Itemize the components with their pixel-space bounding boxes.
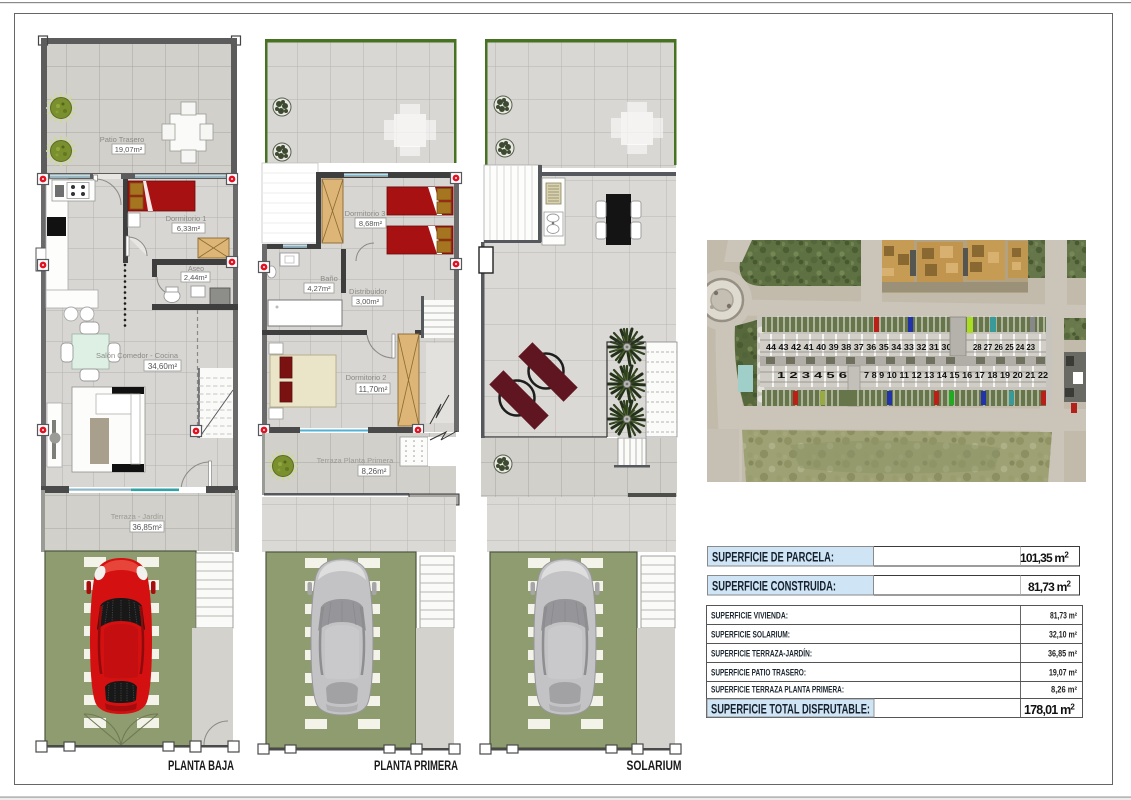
svg-text:Distribuidor: Distribuidor bbox=[349, 287, 387, 296]
svg-text:Terraza - Jardín: Terraza - Jardín bbox=[111, 512, 164, 521]
svg-text:SOLARIUM: SOLARIUM bbox=[627, 758, 682, 773]
svg-text:11,70m²: 11,70m² bbox=[359, 385, 388, 394]
svg-text:SUPERFICIE TERRAZA-JARDÍN:: SUPERFICIE TERRAZA-JARDÍN: bbox=[711, 649, 812, 660]
svg-text:SUPERFICIE DE PARCELA:: SUPERFICIE DE PARCELA: bbox=[712, 550, 834, 565]
svg-text:1 2 3 4 5 6: 1 2 3 4 5 6 bbox=[777, 370, 847, 380]
svg-text:34,60m²: 34,60m² bbox=[148, 362, 178, 371]
svg-text:3,00m²: 3,00m² bbox=[356, 297, 380, 306]
svg-text:32,10 m²: 32,10 m² bbox=[1049, 630, 1077, 640]
svg-text:Terraza Planta Primera: Terraza Planta Primera bbox=[317, 456, 395, 465]
svg-text:4,27m²: 4,27m² bbox=[307, 284, 331, 293]
svg-text:8,26 m²: 8,26 m² bbox=[1051, 685, 1077, 695]
svg-text:6,33m²: 6,33m² bbox=[177, 224, 201, 233]
svg-text:SUPERFICIE TERRAZA PLANTA PRIM: SUPERFICIE TERRAZA PLANTA PRIMERA: bbox=[711, 685, 844, 696]
svg-text:7 8 9 10 11 12 13 14 15 16 17: 7 8 9 10 11 12 13 14 15 16 17 18 19 20 2… bbox=[864, 370, 1048, 380]
svg-text:19,07 m²: 19,07 m² bbox=[1049, 668, 1077, 678]
svg-text:SUPERFICIE TOTAL DISFRUTABLE:: SUPERFICIE TOTAL DISFRUTABLE: bbox=[711, 701, 870, 717]
svg-text:Patio Trasero: Patio Trasero bbox=[100, 135, 145, 144]
svg-text:36,85 m²: 36,85 m² bbox=[1048, 649, 1077, 659]
svg-text:28 27 26 25 24 23: 28 27 26 25 24 23 bbox=[973, 342, 1035, 352]
svg-text:44 43 42 41 40 39 38 37 36 35: 44 43 42 41 40 39 38 37 36 35 34 33 32 3… bbox=[766, 342, 964, 352]
svg-text:19,07m²: 19,07m² bbox=[115, 145, 143, 154]
svg-text:101,35 m2: 101,35 m2 bbox=[1020, 551, 1069, 566]
svg-text:SUPERFICIE VIVIENDA:: SUPERFICIE VIVIENDA: bbox=[711, 611, 788, 622]
svg-text:Salón Comedor - Cocina: Salón Comedor - Cocina bbox=[96, 351, 179, 360]
svg-text:178,01 m2: 178,01 m2 bbox=[1024, 703, 1075, 718]
svg-text:Baño: Baño bbox=[320, 274, 338, 283]
svg-text:SUPERFICIE CONSTRUIDA:: SUPERFICIE CONSTRUIDA: bbox=[712, 579, 836, 594]
svg-text:SUPERFICIE SOLARIUM:: SUPERFICIE SOLARIUM: bbox=[711, 630, 790, 641]
svg-text:Dormitorio 1: Dormitorio 1 bbox=[166, 214, 207, 223]
svg-text:Dormitorio 3: Dormitorio 3 bbox=[345, 209, 386, 218]
svg-text:2,44m²: 2,44m² bbox=[184, 273, 208, 282]
svg-text:PLANTA BAJA: PLANTA BAJA bbox=[168, 758, 234, 773]
svg-text:Dormitorio 2: Dormitorio 2 bbox=[346, 373, 387, 382]
svg-text:PLANTA PRIMERA: PLANTA PRIMERA bbox=[374, 758, 458, 773]
svg-text:81,73 m2: 81,73 m2 bbox=[1028, 580, 1071, 595]
svg-text:8,68m²: 8,68m² bbox=[359, 219, 383, 228]
svg-text:36,85m²: 36,85m² bbox=[132, 523, 162, 532]
svg-text:81,73 m²: 81,73 m² bbox=[1050, 611, 1077, 621]
svg-text:SUPERFICIE PATIO TRASERO:: SUPERFICIE PATIO TRASERO: bbox=[711, 668, 806, 679]
svg-text:8,26m²: 8,26m² bbox=[362, 467, 387, 476]
